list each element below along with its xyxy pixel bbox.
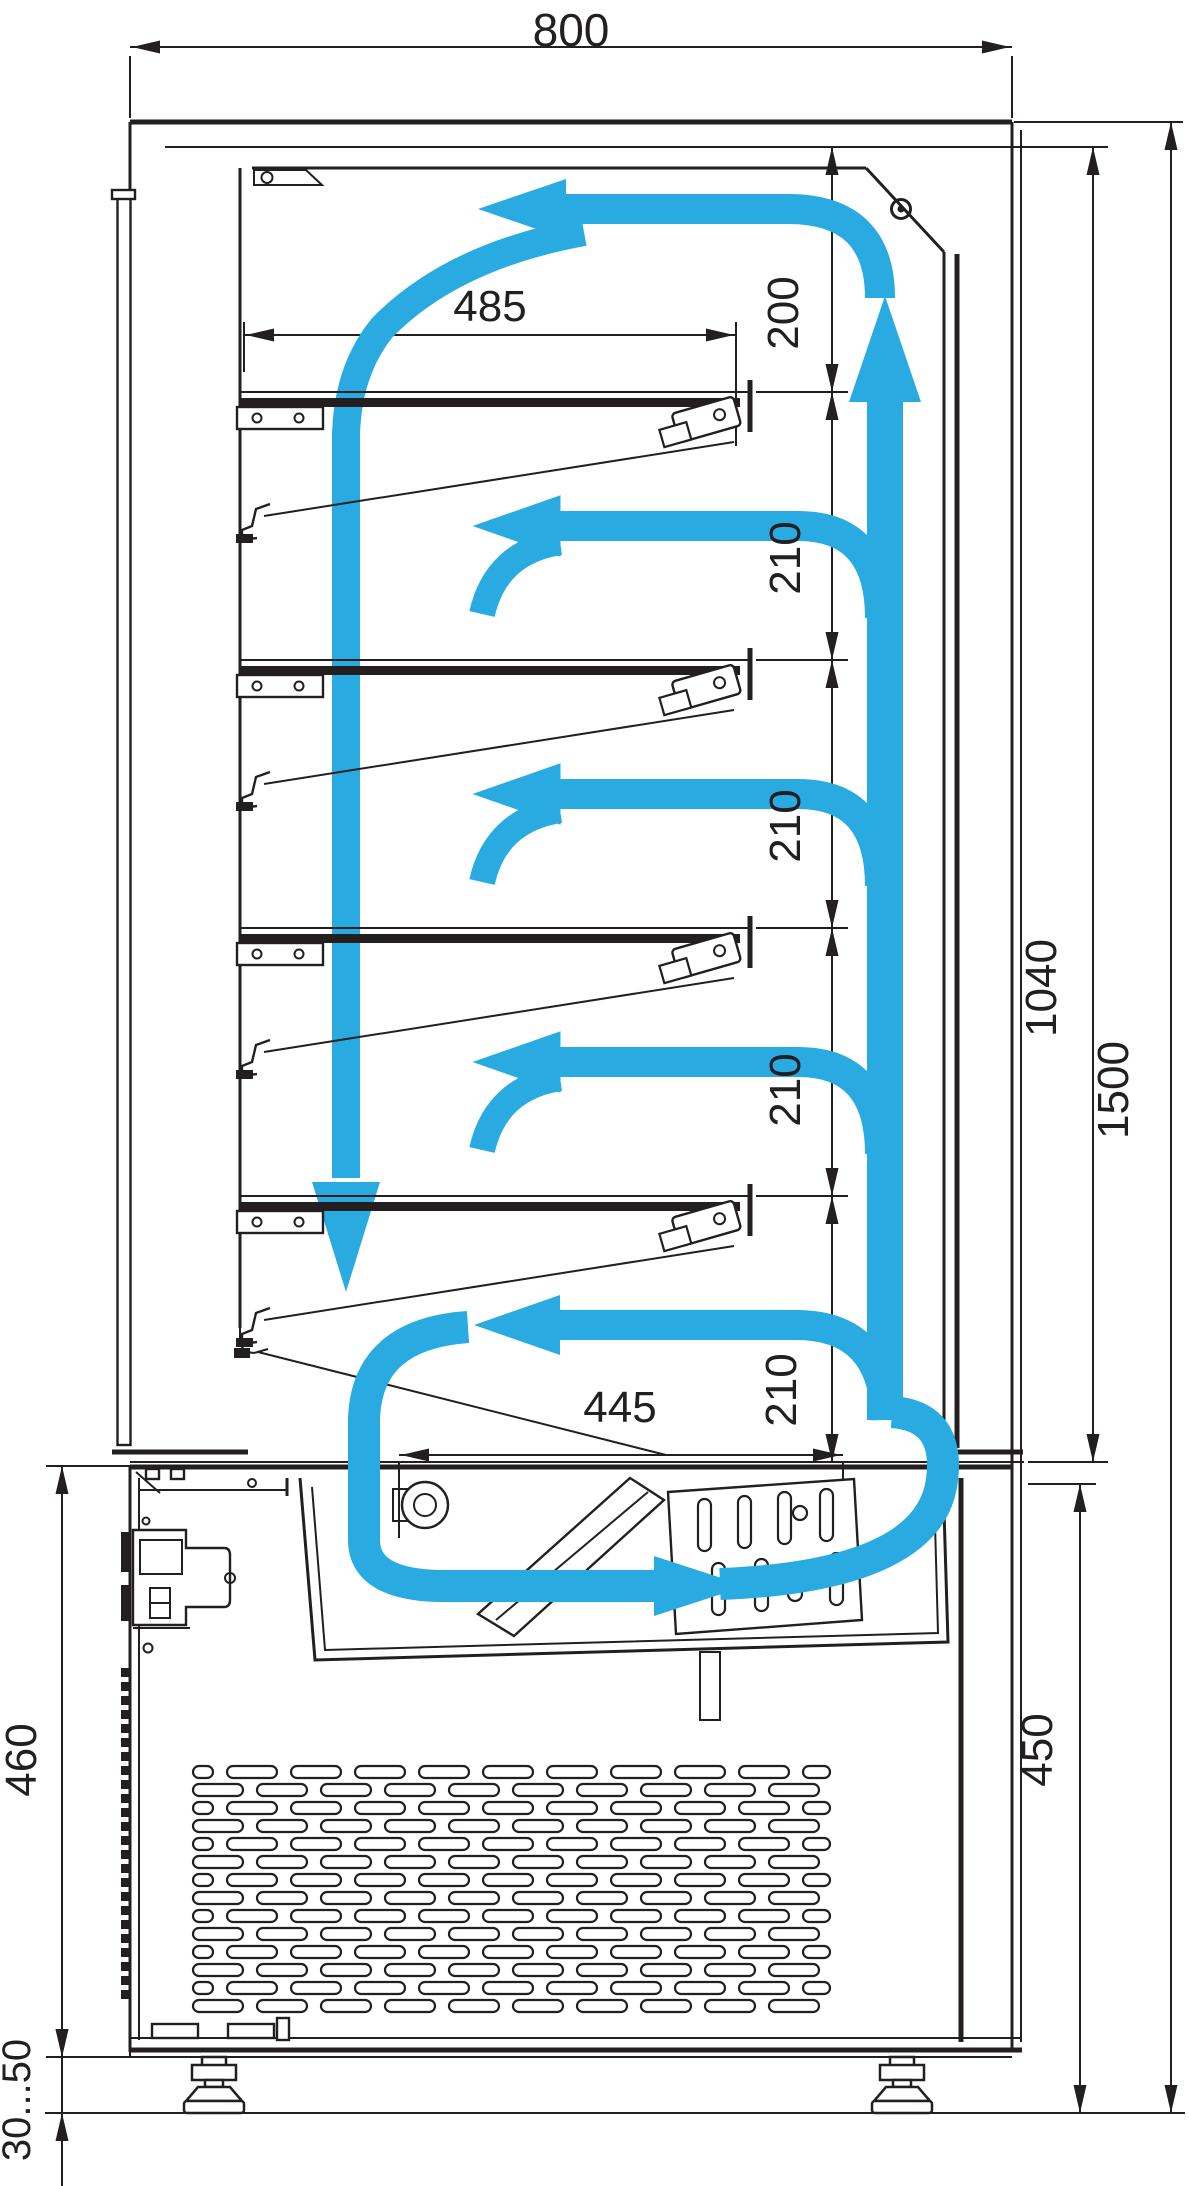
airflow-return-loop xyxy=(364,1327,943,1616)
foot-cone xyxy=(186,2087,242,2101)
dim-arrowhead-icon xyxy=(1074,2085,1087,2113)
grille-slot-icon xyxy=(705,1856,755,1868)
grille-slot-icon xyxy=(227,1982,277,1994)
grille-slot-icon xyxy=(355,1838,405,1850)
grille-slot-icon xyxy=(227,1802,277,1814)
cabinet-structure xyxy=(112,122,1108,2113)
grille-slot-icon xyxy=(705,1892,755,1904)
grille-slot-icon xyxy=(739,1766,789,1778)
rail-tab-icon xyxy=(146,1469,159,1479)
grille-slot-icon xyxy=(355,1766,405,1778)
grille-slot-icon xyxy=(193,1910,213,1922)
grille-slot-icon xyxy=(547,1874,597,1886)
grille-slot-icon xyxy=(483,1910,533,1922)
dim-label-210-2: 210 xyxy=(761,789,810,862)
grille-slot-icon xyxy=(641,1784,691,1796)
grille-slot-icon xyxy=(193,1892,243,1904)
grille-slot-icon xyxy=(483,1946,533,1958)
dim-arrowhead-icon xyxy=(1087,1434,1100,1462)
grille-slot-icon xyxy=(193,1964,243,1976)
dim-arrowhead-icon xyxy=(826,147,839,175)
front-glass xyxy=(118,197,131,1445)
dim-label-200: 200 xyxy=(759,276,808,349)
airflow-branch-arc xyxy=(482,810,560,882)
dim-arrowhead-icon xyxy=(56,2113,69,2141)
grille-slot-icon xyxy=(193,1784,243,1796)
grille-slot-icon xyxy=(513,1964,563,1976)
bracket-hole-icon xyxy=(253,682,262,691)
grille-slot-icon xyxy=(547,1766,597,1778)
arm-wall-nub xyxy=(236,1070,253,1079)
dim-label-1040: 1040 xyxy=(1017,939,1066,1037)
grille-slot-icon xyxy=(675,1802,725,1814)
airflow-branch-arc xyxy=(482,542,560,614)
arm-wall-nub xyxy=(236,802,253,811)
drain-tube xyxy=(700,1652,720,1720)
grille-slot-icon xyxy=(385,1964,435,1976)
grille-slot-icon xyxy=(769,1856,819,1868)
grille-slot-icon xyxy=(193,1946,213,1958)
grille-slot-icon xyxy=(577,1820,627,1832)
dim-label-1500: 1500 xyxy=(1089,1041,1138,1139)
grille-slot-icon xyxy=(385,1820,435,1832)
bracket-hole-icon xyxy=(253,414,262,423)
liner-corner-hole-icon xyxy=(262,172,273,183)
grille-slot-icon xyxy=(355,1910,405,1922)
grille-slot-icon xyxy=(291,1766,341,1778)
dim-arrowhead-icon xyxy=(1087,147,1100,175)
grille-slot-icon xyxy=(419,1838,469,1850)
grille-slot-icon xyxy=(675,1838,725,1850)
foot-nut xyxy=(192,2065,236,2080)
grille-slot-icon xyxy=(257,1856,307,1868)
wall-screw-icon xyxy=(144,1644,153,1653)
dim-arrowhead-icon xyxy=(1165,122,1178,150)
dim-label-210-1: 210 xyxy=(761,521,810,594)
plate-slot-icon xyxy=(738,1496,751,1548)
shelf-support-arm xyxy=(264,1246,734,1320)
grille-slot-icon xyxy=(483,1874,533,1886)
grille-slot-icon xyxy=(675,1766,725,1778)
clamp-jaw xyxy=(659,1226,691,1251)
dim-label-210-4: 210 xyxy=(757,1353,806,1426)
grille-slot-icon xyxy=(803,1982,830,1994)
grille-slot-icon xyxy=(513,1820,563,1832)
grille-slot-icon xyxy=(385,2000,435,2012)
grille-slot-icon xyxy=(257,1820,307,1832)
grille-slot-icon xyxy=(547,1838,597,1850)
fan-housing-icon xyxy=(402,1482,448,1528)
hinge-wall-nub xyxy=(121,1532,130,1572)
grille-slot-icon xyxy=(257,1784,307,1796)
wall-screw-icon xyxy=(143,1518,150,1525)
grille-slot-icon xyxy=(193,1766,213,1778)
foot-nut xyxy=(880,2065,924,2080)
dim-label-30-50: 30...50 xyxy=(0,2039,39,2161)
display-case-section-drawing: 800 485 200 210 210 210 210 445 1040 150… xyxy=(0,0,1189,2186)
dim-label-445: 445 xyxy=(583,1383,656,1432)
plate-slot-icon xyxy=(778,1492,791,1544)
base-tab-icon xyxy=(228,2024,274,2038)
grille-slot-icon xyxy=(227,1946,277,1958)
grille-slot-icon xyxy=(291,1910,341,1922)
adjustable-foot-left xyxy=(184,2057,244,2113)
grille-slot-icon xyxy=(419,1982,469,1994)
grille-slot-icon xyxy=(513,2000,563,2012)
grille-slot-icon xyxy=(611,1874,661,1886)
dim-label-800: 800 xyxy=(533,4,610,56)
liner-bottom-nub xyxy=(234,1348,250,1358)
grille-slot-icon xyxy=(291,1946,341,1958)
grille-slot-icon xyxy=(291,1838,341,1850)
dim-arrowhead-icon xyxy=(826,364,839,392)
grille-slot-icon xyxy=(577,1784,627,1796)
grille-slot-icon xyxy=(193,2000,243,2012)
dim-arrowhead-icon xyxy=(826,660,839,688)
grille-slot-icon xyxy=(257,1928,307,1940)
grille-slot-icon xyxy=(705,1820,755,1832)
grille-slot-icon xyxy=(483,1982,533,1994)
grille-slot-icon xyxy=(483,1766,533,1778)
dim-label-450: 450 xyxy=(1013,1713,1062,1786)
shelf-bracket xyxy=(237,943,323,965)
bracket-hole-icon xyxy=(295,950,304,959)
adjustable-foot-right xyxy=(872,2057,932,2113)
hinge-wall-nub xyxy=(121,1585,130,1621)
grille-slot-icon xyxy=(227,1874,277,1886)
grille-slot-icon xyxy=(227,1910,277,1922)
dim-arrowhead-icon xyxy=(826,900,839,928)
shelf-bracket xyxy=(237,675,323,697)
grille-slot-icon xyxy=(675,1982,725,1994)
grille-slot-icon xyxy=(321,2000,371,2012)
grille-slot-icon xyxy=(611,1946,661,1958)
grille-slot-icon xyxy=(449,1820,499,1832)
plate-slot-icon xyxy=(698,1499,711,1551)
dim-label-485: 485 xyxy=(453,282,526,331)
grille-slot-icon xyxy=(739,1874,789,1886)
grille-slot-icon xyxy=(675,1946,725,1958)
plate-slot-icon xyxy=(820,1489,833,1541)
shelf-bracket xyxy=(237,407,323,429)
grille-slot-icon xyxy=(355,1946,405,1958)
arm-wall-nub xyxy=(236,534,253,543)
grille-slot-icon xyxy=(641,1928,691,1940)
dim-arrowhead-icon xyxy=(826,1196,839,1224)
grille-slot-icon xyxy=(385,1784,435,1796)
dim-arrowhead-icon xyxy=(826,632,839,660)
grille-slot-icon xyxy=(257,1964,307,1976)
bracket-hole-icon xyxy=(253,950,262,959)
grille-slot-icon xyxy=(449,1928,499,1940)
grille-slot-icon xyxy=(193,1838,213,1850)
dim-arrowhead-icon xyxy=(246,329,274,342)
grille-slot-icon xyxy=(705,1964,755,1976)
grille-slot-icon xyxy=(193,1982,213,1994)
technical-drawing-page: 800 485 200 210 210 210 210 445 1040 150… xyxy=(0,0,1189,2186)
grille-slot-icon xyxy=(193,1928,243,1940)
fastener-hole-center-icon xyxy=(898,206,905,213)
grille-slot-icon xyxy=(547,1982,597,1994)
rail-screw-icon xyxy=(248,1479,256,1487)
grille-slot-icon xyxy=(803,1874,830,1886)
airflow-shelf-arrows xyxy=(474,496,880,1154)
dim-arrowhead-icon xyxy=(826,392,839,420)
grille-slot-icon xyxy=(577,1964,627,1976)
grille-slot-icon xyxy=(611,1982,661,1994)
bracket-hole-icon xyxy=(295,682,304,691)
dim-arrowhead-icon xyxy=(982,41,1010,54)
grille-slot-icon xyxy=(355,1982,405,1994)
grille-slot-icon xyxy=(291,1874,341,1886)
arm-wall-nub xyxy=(236,1338,253,1347)
grille-slot-icon xyxy=(385,1892,435,1904)
front-glass-cap xyxy=(112,190,135,199)
grille-slot-icon xyxy=(321,1892,371,1904)
dim-arrowhead-icon xyxy=(826,1168,839,1196)
bracket-hole-icon xyxy=(295,1218,304,1227)
grille-slot-icon xyxy=(803,1838,830,1850)
grille-slot-icon xyxy=(513,1856,563,1868)
grille-slot-icon xyxy=(769,1820,819,1832)
grille-slot-icon xyxy=(611,1838,661,1850)
grille-slot-icon xyxy=(547,1946,597,1958)
grille-slot-icon xyxy=(419,1766,469,1778)
grille-slot-icon xyxy=(355,1802,405,1814)
rail-tab-icon xyxy=(171,1469,184,1479)
grille-slot-icon xyxy=(291,1802,341,1814)
grille-slot-icon xyxy=(547,1910,597,1922)
dim-arrowhead-icon xyxy=(56,1466,69,1494)
grille-slot-icon xyxy=(803,1766,830,1778)
grille-slot-icon xyxy=(419,1874,469,1886)
dim-label-210-3: 210 xyxy=(761,1053,810,1126)
grille-slot-icon xyxy=(321,1928,371,1940)
foot-cone xyxy=(874,2087,930,2101)
grille-slot-icon xyxy=(769,1892,819,1904)
airflow-branch-arc xyxy=(482,1078,560,1150)
grille-slot-icon xyxy=(321,1820,371,1832)
base-tab-icon xyxy=(152,2024,198,2038)
grille-slot-icon xyxy=(769,1784,819,1796)
grille-slot-icon xyxy=(449,1784,499,1796)
grille-slot-icon xyxy=(419,1910,469,1922)
airflow-shelf-arrowhead-4-icon xyxy=(474,1295,560,1355)
grille-slot-icon xyxy=(705,1928,755,1940)
dim-arrowhead-icon xyxy=(1165,2085,1178,2113)
grille-slot-icon xyxy=(227,1766,277,1778)
bracket-hole-icon xyxy=(253,1218,262,1227)
grille-slot-icon xyxy=(257,1892,307,1904)
grille-slot-icon xyxy=(641,2000,691,2012)
grille-slot-icon xyxy=(449,2000,499,2012)
grille-slot-icon xyxy=(611,1802,661,1814)
dim-arrowhead-icon xyxy=(401,1449,429,1462)
adjustable-feet xyxy=(184,2057,932,2113)
grille-slot-icon xyxy=(419,1802,469,1814)
grille-slot-icon xyxy=(705,1784,755,1796)
grille-slot-icon xyxy=(257,2000,307,2012)
grille-slot-icon xyxy=(419,1946,469,1958)
grille-slot-icon xyxy=(321,1856,371,1868)
grille-slot-icon xyxy=(675,1874,725,1886)
clamp-jaw xyxy=(659,958,691,983)
grille-slot-icon xyxy=(641,1820,691,1832)
grille-slot-icon xyxy=(513,1892,563,1904)
grille-slot-icon xyxy=(769,2000,819,2012)
foot-base xyxy=(184,2101,244,2113)
grille-slot-icon xyxy=(385,1928,435,1940)
bracket-hole-icon xyxy=(295,414,304,423)
shelf-bracket xyxy=(237,1211,323,1233)
clamp-jaw xyxy=(659,690,691,715)
grille-slot-icon xyxy=(641,1892,691,1904)
grille-slot-icon xyxy=(803,1946,830,1958)
grille-slot-icon xyxy=(739,1910,789,1922)
grille-slot-icon xyxy=(355,1874,405,1886)
grille-slot-icon xyxy=(739,1982,789,1994)
grille-slot-icon xyxy=(483,1838,533,1850)
grille-slot-icon xyxy=(449,1856,499,1868)
grille-slot-icon xyxy=(577,2000,627,2012)
base-stud-icon xyxy=(277,2018,289,2040)
grille-slot-icon xyxy=(803,1802,830,1814)
grille-slot-icon xyxy=(193,1802,213,1814)
dim-arrowhead-icon xyxy=(56,2029,69,2057)
grille-slot-icon xyxy=(705,2000,755,2012)
grille-slot-icon xyxy=(385,1856,435,1868)
grille-slot-icon xyxy=(321,1784,371,1796)
grille-slot-icon xyxy=(769,1928,819,1940)
grille-slot-icon xyxy=(193,1820,243,1832)
grille-slot-icon xyxy=(803,1910,830,1922)
grille-slot-icon xyxy=(449,1964,499,1976)
dim-arrowhead-icon xyxy=(826,928,839,956)
airflow-down-arrowhead-icon xyxy=(312,1182,380,1292)
grille-slot-icon xyxy=(577,1892,627,1904)
clamp-jaw xyxy=(659,422,691,447)
grille-slot-icon xyxy=(513,1928,563,1940)
grille-slot-icon xyxy=(577,1856,627,1868)
airflow-riser-arrowhead-icon xyxy=(849,296,921,402)
grille-slot-icon xyxy=(641,1856,691,1868)
grille-slot-icon xyxy=(291,1982,341,1994)
ventilation-grille xyxy=(193,1766,830,2012)
grille-slot-icon xyxy=(321,1964,371,1976)
grille-slot-icon xyxy=(449,1892,499,1904)
grille-slot-icon xyxy=(193,1856,243,1868)
grille-slot-icon xyxy=(739,1802,789,1814)
grille-slot-icon xyxy=(739,1838,789,1850)
grille-slot-icon xyxy=(513,1784,563,1796)
grille-slot-icon xyxy=(675,1910,725,1922)
grille-slot-icon xyxy=(769,1964,819,1976)
dim-arrowhead-icon xyxy=(706,329,734,342)
foot-base xyxy=(872,2101,932,2113)
dim-arrowhead-icon xyxy=(1074,1484,1087,1512)
grille-slot-icon xyxy=(227,1838,277,1850)
grille-slot-icon xyxy=(611,1766,661,1778)
dim-label-460: 460 xyxy=(0,1723,46,1796)
grille-slot-icon xyxy=(577,1928,627,1940)
grille-slot-icon xyxy=(483,1802,533,1814)
dim-arrowhead-icon xyxy=(813,1449,841,1462)
grille-slot-icon xyxy=(739,1946,789,1958)
grille-slot-icon xyxy=(611,1910,661,1922)
grille-slot-icon xyxy=(193,1874,213,1886)
plate-hole-icon xyxy=(793,1506,807,1520)
grille-slot-icon xyxy=(641,1964,691,1976)
grille-slot-icon xyxy=(547,1802,597,1814)
dim-arrowhead-icon xyxy=(132,41,160,54)
